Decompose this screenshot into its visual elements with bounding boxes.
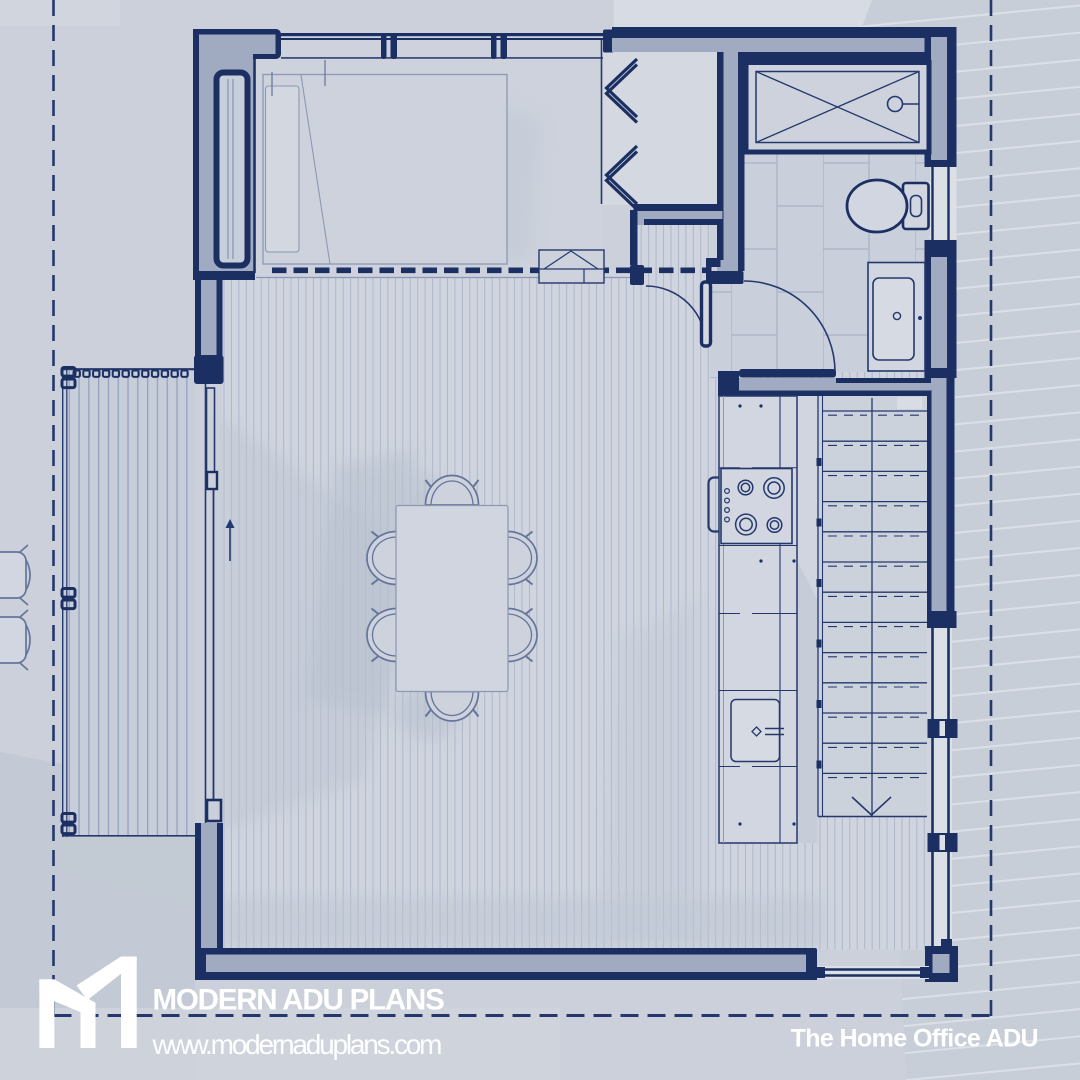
svg-text:www.modernaduplans.com: www.modernaduplans.com xyxy=(152,1029,442,1060)
svg-text:The Home Office ADU: The Home Office ADU xyxy=(791,1025,1038,1053)
svg-text:MODERN ADU PLANS: MODERN ADU PLANS xyxy=(153,984,445,1017)
